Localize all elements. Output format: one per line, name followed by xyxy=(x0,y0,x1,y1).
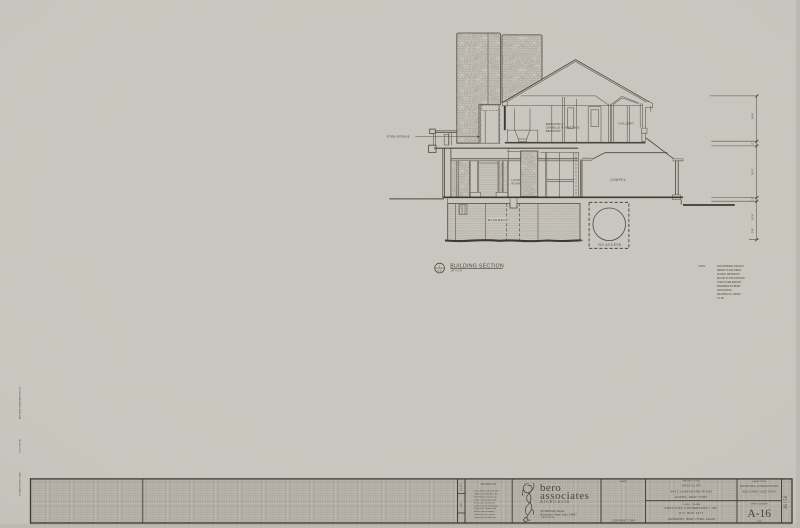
svg-text:716-262-2035: 716-262-2035 xyxy=(540,517,554,519)
svg-text:architect, to alter this drawi: architect, to alter this drawing. xyxy=(474,504,498,507)
svg-text:of Article 145 of the New York: of Article 145 of the New York xyxy=(474,492,498,495)
svg-text:architects: architects xyxy=(540,499,570,504)
svg-text:the direction of a licensed: the direction of a licensed xyxy=(474,501,494,504)
svg-text:SHEET NUMBER: SHEET NUMBER xyxy=(751,504,769,506)
svg-text:SHEET TITLE: SHEET TITLE xyxy=(752,481,766,483)
svg-text:description of the alteration.: description of the alteration. xyxy=(474,516,497,519)
svg-text:NO ACCESS: NO ACCESS xyxy=(598,243,622,247)
svg-text:WARNING: WARNING xyxy=(481,482,497,486)
svg-text:A-16: A-16 xyxy=(747,508,771,520)
svg-text:BEDROOM 9: BEDROOM 9 xyxy=(546,122,564,126)
svg-text:10'-0": 10'-0" xyxy=(751,213,755,220)
svg-text:DATE: DATE xyxy=(460,502,463,507)
svg-text:A-16: A-16 xyxy=(437,269,442,272)
svg-text:NO. REV.: NO. REV. xyxy=(461,483,463,491)
svg-text:14'-6": 14'-6" xyxy=(751,113,755,120)
svg-text:EVANS, NEW YORK: EVANS, NEW YORK xyxy=(675,495,708,499)
svg-text:2-3-99: 2-3-99 xyxy=(717,298,724,300)
svg-text:1'-0": 1'-0" xyxy=(753,197,755,202)
svg-text:BERO ASSOCIATES ARCHITECTS: BERO ASSOCIATES ARCHITECTS xyxy=(19,386,22,419)
svg-text:PROJECT TITLE: PROJECT TITLE xyxy=(683,481,700,483)
svg-text:STORM VESTIBULE: STORM VESTIBULE xyxy=(387,137,410,139)
svg-text:person, unless acting under: person, unless acting under xyxy=(474,498,496,501)
svg-text:FOR MATERIAL DETAILS: FOR MATERIAL DETAILS xyxy=(717,265,744,268)
svg-text:6-3-04: 6-3-04 xyxy=(757,520,762,522)
svg-text:9": 9" xyxy=(753,142,755,144)
svg-text:(ISABELLE R. MARTIN'S): (ISABELLE R. MARTIN'S) xyxy=(546,125,580,129)
svg-text:BOUND IN THE HISTORIC: BOUND IN THE HISTORIC xyxy=(717,278,745,280)
svg-text:BASEMENT: BASEMENT xyxy=(488,218,509,222)
svg-text:NOTE:: NOTE: xyxy=(699,266,706,268)
svg-text:ASSOCIATES: ASSOCIATES xyxy=(717,289,732,292)
svg-text:BUILDING SECTION: BUILDING SECTION xyxy=(743,490,776,494)
svg-text:"altered by" with a specific: "altered by" with a specific xyxy=(474,513,495,516)
svg-text:BUILDING SECTION: BUILDING SECTION xyxy=(450,263,504,269)
svg-text:BEDROOM: BEDROOM xyxy=(546,129,561,133)
svg-text:CHAPEL: CHAPEL xyxy=(611,178,627,182)
svg-text:PREPARED BY BERO: PREPARED BY BERO xyxy=(717,285,740,288)
svg-text:Rochester, New York, 14607: Rochester, New York, 14607 xyxy=(540,512,577,516)
svg-text:ROOM: ROOM xyxy=(512,182,522,186)
svg-text:STAMP: STAMP xyxy=(620,480,628,483)
svg-text:State Education Law for any: State Education Law for any xyxy=(474,495,497,498)
svg-text:16'-0": 16'-0" xyxy=(751,168,755,175)
svg-text:affix his seal and notation: affix his seal and notation xyxy=(474,510,494,513)
svg-text:It is a violation of Section 7: It is a violation of Section 7209 xyxy=(474,490,498,493)
svg-text:LIVING: LIVING xyxy=(512,178,522,182)
svg-text:GALLERY: GALLERY xyxy=(618,122,634,126)
svg-text:REFER TO FEATURES: REFER TO FEATURES xyxy=(717,269,742,272)
svg-text:EXISTING CONDITIONS: EXISTING CONDITIONS xyxy=(740,484,779,488)
svg-text:STRUCTURE REPORT: STRUCTURE REPORT xyxy=(717,282,742,284)
svg-text:ARCHITECTS, DATED: ARCHITECTS, DATED xyxy=(717,293,741,296)
svg-text:SURVEY DRAWINGS: SURVEY DRAWINGS xyxy=(717,273,740,276)
svg-text:3'-6": 3'-6" xyxy=(752,228,755,233)
svg-text:1/4" = 1'-0": 1/4" = 1'-0" xyxy=(451,270,463,273)
svg-text:26 | 50: 26 | 50 xyxy=(784,495,789,509)
svg-text:AMHERST, NEW YORK 14226: AMHERST, NEW YORK 14226 xyxy=(668,517,715,521)
svg-text:6472 LAKESHORE ROAD: 6472 LAKESHORE ROAD xyxy=(671,489,713,493)
svg-text:P.O. BOX 2177: P.O. BOX 2177 xyxy=(679,511,703,515)
svg-text:6/1/04 2:23 PM: 6/1/04 2:23 PM xyxy=(20,439,22,453)
svg-text:GRAYCLIFF CONSERVANCY, INC.: GRAYCLIFF CONSERVANCY, INC. xyxy=(664,506,719,510)
svg-text:GRAYCLIFF: GRAYCLIFF xyxy=(682,484,701,488)
svg-text:G:\GRAYCLIFF\A-16.DWG: G:\GRAYCLIFF\A-16.DWG xyxy=(19,472,22,496)
svg-text:COPYRIGHT © 2004: COPYRIGHT © 2004 xyxy=(612,519,635,522)
svg-text:If altered, the architect shal: If altered, the architect shall xyxy=(474,507,497,510)
